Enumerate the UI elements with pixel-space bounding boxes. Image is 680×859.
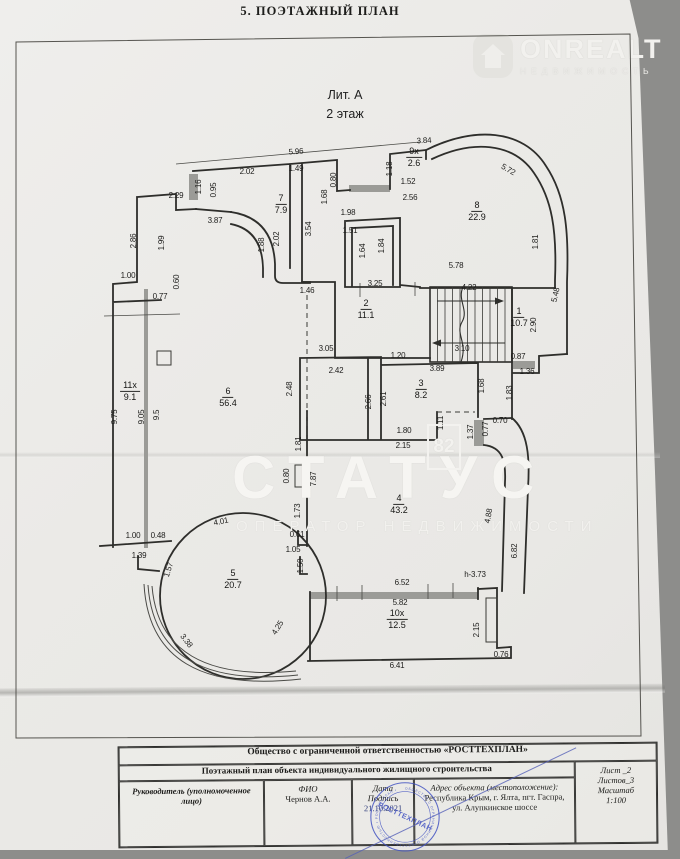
room-label: 211.1 — [358, 298, 375, 320]
room-number: 5 — [227, 568, 238, 580]
dimension-label: 9.05 — [138, 410, 146, 425]
scale-label: Масштаб — [598, 785, 634, 795]
dimension-label: 2.48 — [286, 382, 294, 397]
room-number: 7 — [275, 193, 286, 205]
dimension-label: 1.99 — [158, 236, 166, 251]
room-label: 110.7 — [510, 306, 528, 328]
dimension-label: 1.16 — [195, 180, 203, 195]
dimension-label: 3.84 — [416, 137, 431, 146]
dimension-label: 1.51 — [343, 227, 358, 235]
dimension-label: 1.39 — [132, 552, 147, 560]
dimension-label: 0.60 — [173, 275, 181, 290]
room-number: 2 — [360, 298, 371, 310]
dimension-label: 0.77 — [153, 293, 168, 301]
dimension-label: 1.88 — [258, 238, 266, 253]
dimension-label: 3.54 — [305, 222, 313, 237]
room-area: 2.6 — [406, 158, 422, 168]
room-number: 8 — [471, 200, 482, 212]
dimension-label: 1.00 — [126, 532, 141, 540]
dimension-label: 0.70 — [493, 417, 508, 425]
dimension-label: h-3.73 — [464, 571, 485, 579]
room-number: 10x — [387, 608, 408, 620]
room-number: 6 — [222, 386, 233, 398]
room-area: 43.2 — [390, 505, 408, 515]
room-label: 822.9 — [468, 200, 486, 222]
sheet-frame — [16, 34, 641, 738]
room-label: 443.2 — [390, 493, 408, 515]
plan-title: Лит. А 2 этаж — [0, 86, 680, 124]
dimension-label: 1.18 — [386, 162, 394, 177]
dimension-label: 2.15 — [396, 442, 411, 450]
sheet-number: Лист _2 — [600, 765, 631, 775]
dimension-label: 1.81 — [295, 437, 303, 452]
dimension-label: 2.61 — [380, 392, 388, 407]
stamp-center-text: РОСТТЕХПЛАН — [377, 802, 433, 833]
floor-plan-drawing — [0, 0, 680, 850]
room-area: 8.2 — [415, 390, 428, 400]
dimension-label: 2.90 — [530, 318, 538, 333]
room-label: 520.7 — [224, 568, 242, 590]
dimension-label: 3.25 — [368, 280, 383, 288]
dimension-label: 1.83 — [506, 386, 514, 401]
room-number: 1 — [513, 306, 524, 318]
room-label: 38.2 — [415, 378, 428, 400]
dimension-label: 2.42 — [329, 367, 344, 375]
room-label: 77.9 — [275, 193, 288, 215]
role-cell: Руководитель (уполномоченное лицо) — [119, 780, 265, 847]
dimension-label: 1.52 — [401, 178, 416, 186]
dimension-label: 5.78 — [449, 262, 464, 270]
dimension-label: 2.29 — [169, 192, 184, 200]
dimension-label: 1.37 — [467, 425, 475, 440]
dimension-label: 5.96 — [288, 147, 303, 156]
badge-82-watermark: 82 — [427, 424, 461, 470]
plan-litera: Лит. А — [0, 86, 680, 105]
dimension-label: 2.02 — [240, 168, 255, 176]
dimension-label: 1.05 — [286, 546, 301, 554]
staircase — [430, 287, 512, 362]
dimension-label: 1.84 — [378, 239, 386, 254]
dimension-label: 1.11 — [437, 416, 445, 430]
dimension-label: 5.82 — [393, 599, 408, 607]
room-label: 11x9.1 — [120, 380, 140, 402]
room-number: 11x — [120, 380, 140, 392]
dimension-label: 6.52 — [395, 579, 410, 587]
room-label: 9x2.6 — [406, 146, 422, 168]
dimension-label: 1.50 — [297, 559, 305, 574]
photographed-floor-plan-page: { "header": {"title": "5. ПОЭТАЖНЫЙ ПЛАН… — [0, 0, 680, 850]
dimension-label: 1.64 — [359, 244, 367, 259]
room-label: 656.4 — [219, 386, 237, 408]
dimension-label: 2.02 — [273, 232, 281, 247]
sheet-info-cell: Лист _2 Листов_3 Масштаб 1:100 — [575, 761, 658, 844]
room-area: 10.7 — [510, 318, 528, 328]
room-area: 9.1 — [120, 392, 140, 402]
dimension-label: 1.46 — [300, 287, 315, 295]
dimension-label: 3.10 — [455, 345, 470, 353]
dimension-label: 1.20 — [391, 352, 406, 360]
dimension-label: 3.89 — [430, 365, 445, 373]
room-number: 4 — [393, 493, 404, 505]
dimension-label: 2.15 — [473, 623, 481, 638]
dimension-label: 0.80 — [330, 173, 338, 188]
fio-label: ФИО — [298, 784, 317, 794]
room-area: 11.1 — [358, 310, 375, 320]
dimension-label: 9.5 — [153, 410, 161, 421]
dimension-label: 3.05 — [319, 345, 334, 353]
dimension-label: 9.75 — [111, 410, 119, 425]
room-number: 9x — [406, 146, 422, 158]
dimension-label: 0.48 — [151, 532, 166, 540]
room-label: 10x12.5 — [387, 608, 408, 630]
dimension-label: 1.68 — [478, 379, 486, 394]
dimension-label: 6.41 — [390, 662, 405, 670]
dimension-label: 1.36 — [520, 368, 535, 376]
walls — [100, 135, 568, 661]
dimension-label: 1.81 — [532, 235, 540, 250]
dimension-label: 7.87 — [310, 472, 318, 487]
company-stamp: ОБЩЕСТВО С ОГРАНИЧЕННОЙ ОТВЕТСТВЕННОСТЬЮ… — [323, 772, 487, 852]
dimension-label: 1.68 — [321, 190, 329, 205]
room-area: 20.7 — [224, 580, 242, 590]
dimension-label: 1.00 — [121, 272, 136, 280]
dimension-label: 1.98 — [341, 209, 356, 217]
room-area: 7.9 — [275, 205, 288, 215]
dimension-label: 1.80 — [397, 427, 412, 435]
dimension-label: 0.61 — [290, 531, 305, 539]
room-number: 3 — [415, 378, 426, 390]
dimension-label: 2.86 — [130, 234, 138, 249]
dimension-label: 1.73 — [294, 504, 302, 519]
scale-value: 1:100 — [606, 795, 626, 805]
dimension-label: 0.87 — [511, 353, 526, 361]
dimension-label: 3.87 — [208, 217, 223, 225]
room-area: 22.9 — [468, 212, 486, 222]
room-area: 56.4 — [219, 398, 237, 408]
dimension-label: 2.56 — [403, 194, 418, 202]
dimension-label: 0.95 — [210, 183, 218, 198]
room-area: 12.5 — [387, 620, 408, 630]
sheets-total: Листов_3 — [598, 775, 634, 785]
dimension-label: 0.76 — [494, 651, 509, 659]
dimension-label: 0.77 — [482, 422, 490, 437]
dimension-label: 2.66 — [365, 395, 373, 410]
dimension-label: 6.82 — [511, 544, 519, 559]
dimension-label: 1.49 — [289, 165, 304, 173]
dimension-label: 0.80 — [283, 469, 291, 484]
plan-floor: 2 этаж — [0, 105, 680, 124]
dimension-label: 4.22 — [462, 284, 477, 292]
